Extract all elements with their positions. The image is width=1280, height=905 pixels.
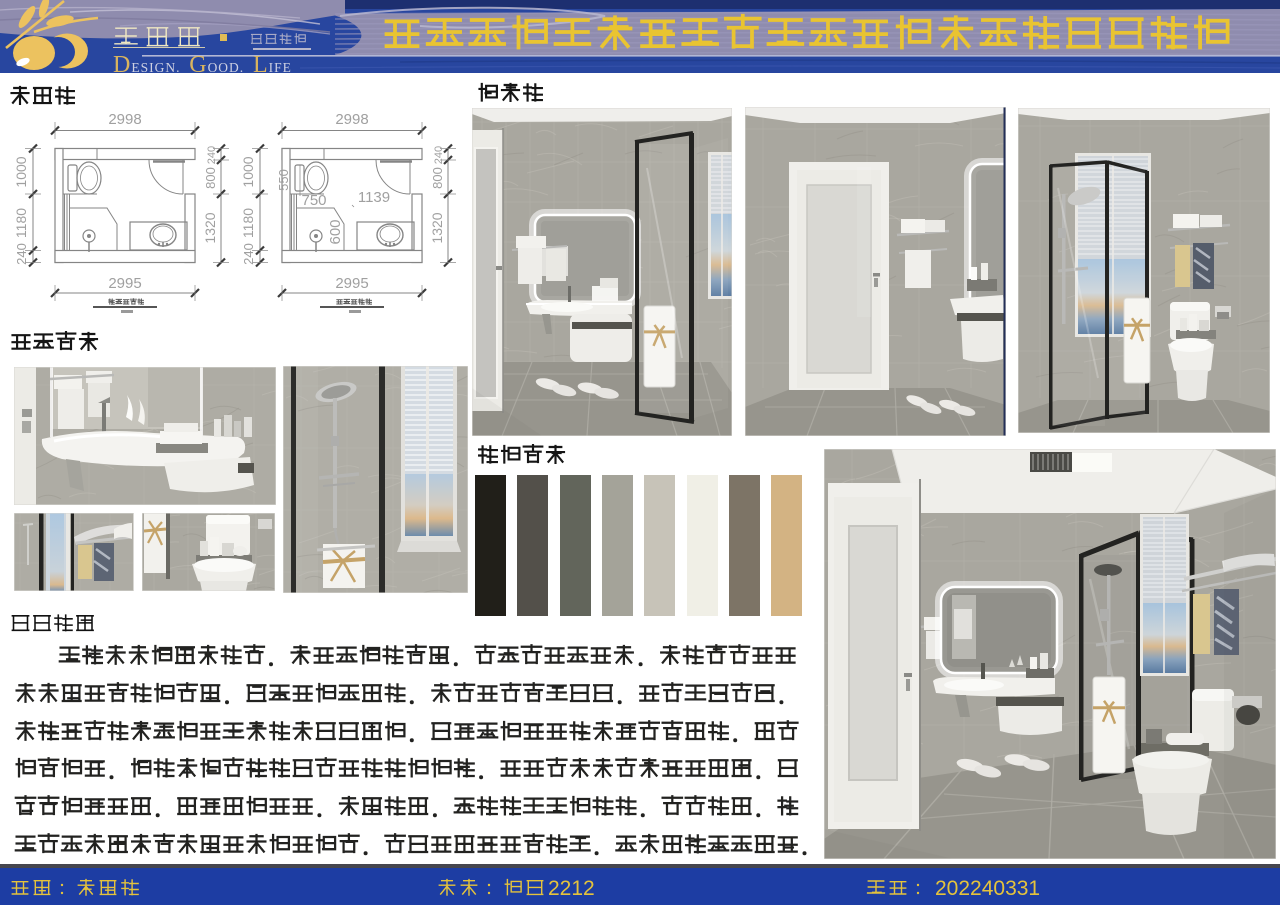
svg-text:240: 240 <box>206 146 218 164</box>
svg-text:1320: 1320 <box>202 212 218 243</box>
svg-text:240: 240 <box>241 243 256 265</box>
svg-text:2998: 2998 <box>335 111 368 128</box>
svg-text:1000: 1000 <box>13 156 29 187</box>
svg-text:1000: 1000 <box>240 156 256 187</box>
svg-text:240: 240 <box>433 146 445 164</box>
svg-text:1180: 1180 <box>13 208 29 238</box>
svg-text:550: 550 <box>276 169 291 191</box>
svg-text:750: 750 <box>301 192 326 209</box>
svg-text:2995: 2995 <box>108 275 141 292</box>
svg-text:2995: 2995 <box>335 275 368 292</box>
svg-text:800: 800 <box>430 167 445 189</box>
svg-text:600: 600 <box>327 219 344 244</box>
svg-text:1139: 1139 <box>358 189 390 206</box>
svg-text:800: 800 <box>203 167 218 189</box>
svg-text:240: 240 <box>14 243 29 265</box>
svg-text:1320: 1320 <box>429 212 445 243</box>
svg-text:1180: 1180 <box>240 208 256 238</box>
svg-text:2998: 2998 <box>108 111 141 128</box>
